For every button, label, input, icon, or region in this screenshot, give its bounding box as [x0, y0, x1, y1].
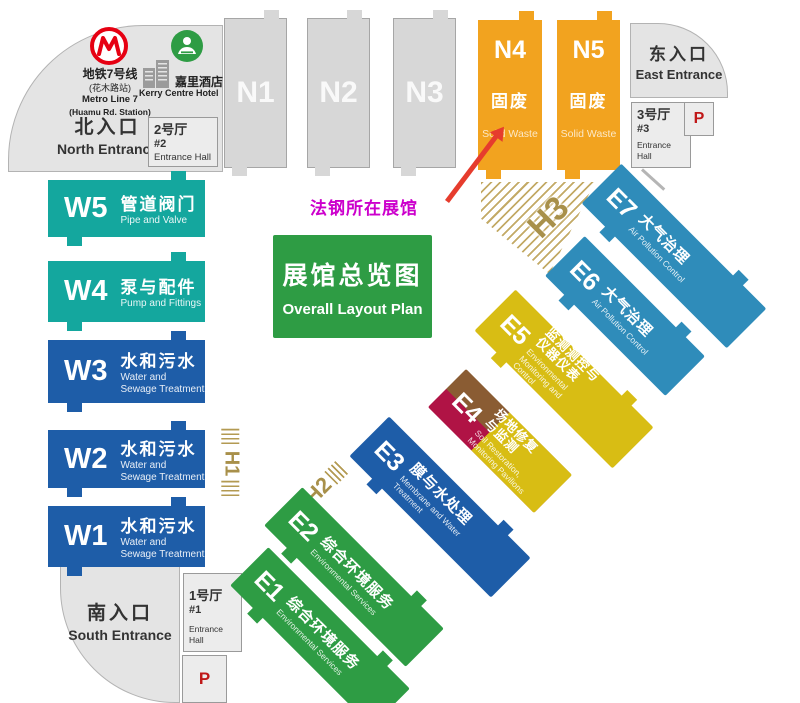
hall-n5: N5 固废 Solid Waste	[557, 20, 620, 170]
hall-e4-label: E4	[446, 387, 488, 429]
hotel-concierge-icon	[171, 30, 203, 62]
hall-w5-label: W5	[64, 192, 108, 225]
zone-h1-label: H1	[219, 451, 242, 477]
hall-w5-cn: 管道阀门	[121, 190, 197, 215]
parking-south-label: P	[199, 669, 210, 689]
hall-w2-label: W2	[64, 443, 108, 476]
entrance-hall-1-no: #1	[189, 604, 236, 618]
hall-w2-cn: 水和污水	[121, 435, 206, 460]
metro-logo-icon	[89, 26, 129, 66]
hall-n3: N3	[393, 18, 456, 168]
entrance-hall-3-no: #3	[637, 123, 685, 137]
south-entrance-en: South Entrance	[55, 627, 185, 643]
entrance-hall-2: 2号厅 #2 Entrance Hall	[148, 117, 218, 167]
entrance-hall-1-cn: 1号厅	[189, 588, 236, 604]
east-entrance-en: East Entrance	[630, 67, 728, 82]
hall-w2: W2 水和污水 Water and Sewage Treatment	[48, 430, 205, 488]
hall-e3-label: E3	[368, 435, 410, 477]
annotation-note: 法钢所在展馆	[310, 194, 418, 219]
hall-w4-cn: 泵与配件	[121, 273, 202, 298]
hall-n2-label: N2	[319, 76, 357, 110]
expo-overall-layout-map: 地铁7号线 (花木路站) Metro Line 7 (Huamu Rd. Sta…	[0, 0, 800, 703]
entrance-hall-2-cn: 2号厅	[154, 122, 212, 138]
hall-w2-en: Water and Sewage Treatment	[121, 460, 206, 484]
hall-n1-label: N1	[236, 76, 274, 110]
hall-n1: N1	[224, 18, 287, 168]
hall-e6-label: E6	[564, 255, 606, 297]
entrance-hall-2-en: Entrance Hall	[154, 152, 212, 164]
hall-n2: N2	[307, 18, 370, 168]
south-entrance-cn: 南入口	[55, 598, 185, 625]
hall-n5-en: Solid Waste	[561, 128, 617, 140]
hall-w1-label: W1	[64, 520, 108, 553]
east-entrance-cn: 东入口	[630, 40, 728, 65]
hotel-name-en: Kerry Centre Hotel	[139, 88, 219, 98]
east-entrance-label: 东入口 East Entrance	[630, 40, 728, 82]
zone-h1-hatch	[222, 429, 240, 447]
hall-n5-label: N5	[573, 36, 605, 65]
hall-w4-en: Pump and Fittings	[121, 298, 202, 310]
entrance-hall-3: 3号厅 #3 Entrance Hall	[631, 102, 691, 168]
zone-h1: H1	[219, 429, 242, 499]
hall-n3-label: N3	[405, 76, 443, 110]
hall-w3-label: W3	[64, 355, 108, 388]
hall-w4-label: W4	[64, 275, 108, 308]
hall-n4-cn: 固废	[491, 87, 529, 112]
hall-w3: W3 水和污水 Water and Sewage Treatment	[48, 340, 205, 403]
parking-east-label: P	[694, 110, 705, 128]
hall-w3-en: Water and Sewage Treatment	[121, 372, 206, 396]
hall-w1-cn: 水和污水	[121, 512, 206, 537]
hall-w5: W5 管道阀门 Pipe and Valve	[48, 180, 205, 237]
entrance-hall-1-en: Entrance Hall	[189, 624, 236, 645]
hall-w5-en: Pipe and Valve	[121, 215, 197, 227]
legend-title-en: Overall Layout Plan	[282, 301, 422, 318]
hall-w3-cn: 水和污水	[121, 347, 206, 372]
hall-e2-label: E2	[282, 505, 324, 547]
hall-e7-label: E7	[600, 182, 642, 224]
legend-title-cn: 展馆总览图	[282, 256, 422, 292]
hall-n4-label: N4	[494, 36, 526, 65]
hall-w1: W1 水和污水 Water and Sewage Treatment	[48, 506, 205, 567]
hall-e5-label: E5	[494, 309, 536, 351]
hall-e1-label: E1	[248, 565, 290, 607]
entrance-hall-2-no: #2	[154, 138, 212, 152]
hall-w4: W4 泵与配件 Pump and Fittings	[48, 261, 205, 322]
south-entrance-label: 南入口 South Entrance	[55, 598, 185, 643]
entrance-hall-3-cn: 3号厅	[637, 107, 685, 123]
zone-h1-hatch2	[222, 480, 240, 498]
map-legend-title: 展馆总览图 Overall Layout Plan	[273, 235, 432, 338]
parking-east: P	[684, 102, 714, 136]
entrance-hall-3-en: Entrance Hall	[637, 140, 685, 161]
hall-n5-cn: 固废	[570, 87, 608, 112]
hotel-buildings-icon	[142, 58, 174, 88]
hall-w1-en: Water and Sewage Treatment	[121, 537, 206, 561]
parking-south: P	[182, 655, 227, 703]
